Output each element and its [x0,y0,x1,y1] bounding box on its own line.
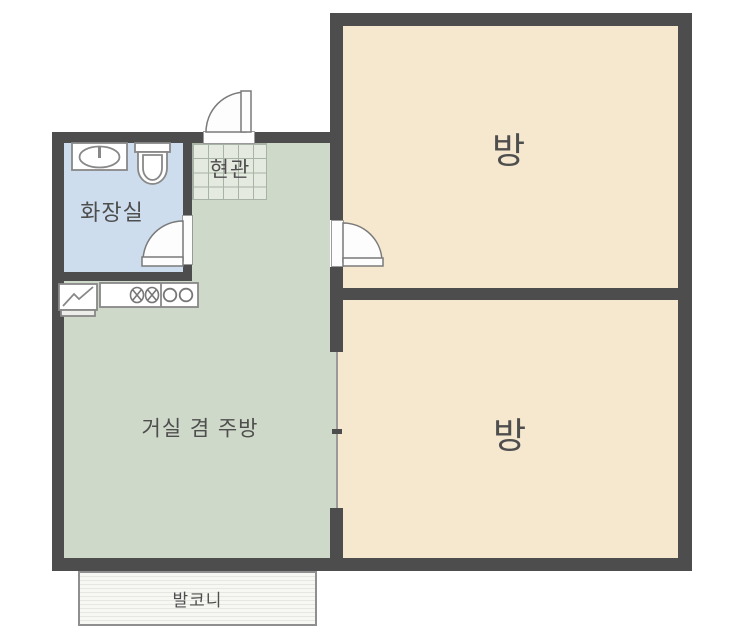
bedroom-door-swing-icon [343,223,383,266]
bedroom-top-label: 방 [492,134,526,170]
bathroom-label: 화장실 [80,203,144,225]
kitchen-counter-icon [100,283,198,307]
balcony-label: 발코니 [173,586,223,611]
washbasin-icon [72,143,127,170]
entrance-door-swing-icon [206,91,251,132]
floor-plan: 발코니 방 방 화장실 현관 거실 겸 주방 [0,0,750,640]
refrigerator-icon [59,284,97,316]
plan-symbols-layer [0,0,750,640]
bathroom-door-swing-icon [142,221,183,266]
bedroom-bottom-label: 방 [493,419,527,455]
entrance-label: 현관 [210,160,251,181]
living-kitchen-label: 거실 겸 주방 [142,419,259,440]
toilet-icon [135,143,170,184]
balcony-area: 발코니 [78,571,317,626]
